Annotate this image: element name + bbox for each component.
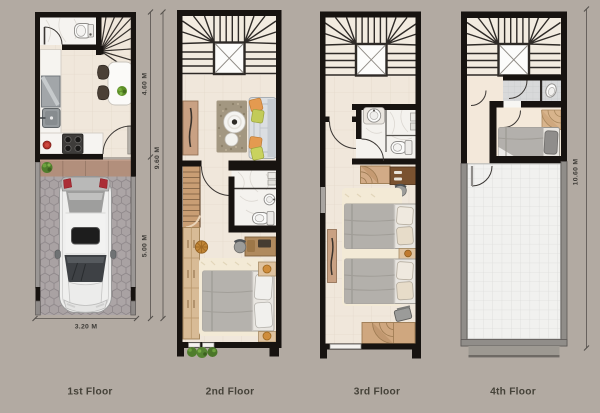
svg-text:10.60 M: 10.60 M	[573, 159, 580, 186]
svg-text:1st Floor: 1st Floor	[67, 387, 112, 398]
svg-text:2nd Floor: 2nd Floor	[206, 387, 255, 398]
svg-text:3rd Floor: 3rd Floor	[354, 387, 400, 398]
svg-text:4th Floor: 4th Floor	[490, 387, 536, 398]
svg-text:9.60 M: 9.60 M	[154, 147, 161, 170]
svg-text:5.00 M: 5.00 M	[142, 235, 149, 258]
svg-text:4.60 M: 4.60 M	[142, 73, 149, 96]
svg-text:3.20 M: 3.20 M	[75, 324, 98, 331]
